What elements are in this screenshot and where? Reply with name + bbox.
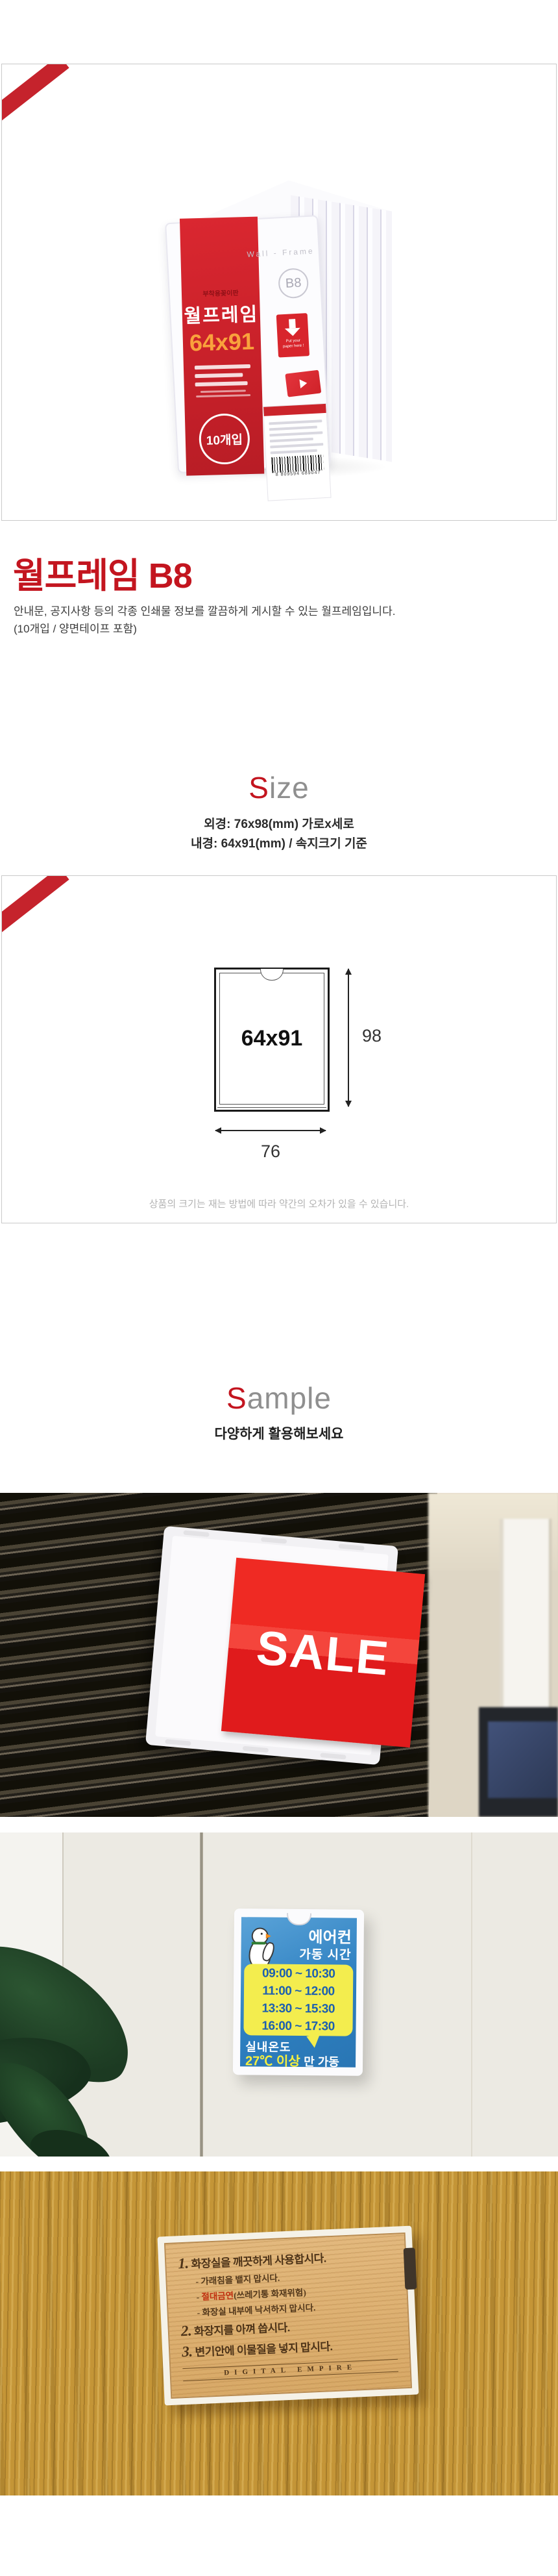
size-disclaimer: 상품의 크기는 재는 방법에 따라 약간의 오차가 있을 수 있습니다.: [0, 1197, 558, 1210]
front-frame: 부착용꽂이판 월프레임 64x91 10개입 Wall - Frame B8: [165, 215, 331, 473]
aircon-subtitle: 가동 시간: [299, 1945, 351, 1963]
package-fine-print-line: [196, 394, 250, 397]
hallway-monitor-screen: [488, 1721, 558, 1798]
height-dimension-arrow: [348, 969, 349, 1107]
time-slot: 09:00 ~ 10:30: [244, 1964, 353, 1982]
aircon-title: 에어컨: [308, 1924, 352, 1947]
sample-subtitle: 다양하게 활용해보세요: [0, 1423, 558, 1443]
package-size: 64x91: [182, 328, 261, 357]
sale-text: SALE: [254, 1619, 392, 1686]
product-photo: 부착용꽂이판 월프레임 64x91 10개입 Wall - Frame B8: [167, 162, 401, 473]
package-name: 월프레임: [182, 299, 260, 329]
time-slot: 11:00 ~ 12:00: [244, 1982, 353, 2000]
frame-slot: [165, 1739, 191, 1745]
aircon-sign-frame: 에어컨 가동 시간 09:00 ~ 10:30 11:00 ~ 12:00 13…: [233, 1908, 364, 2076]
hallway-background: [428, 1493, 558, 1817]
frame-diagram-inner: 64x91: [219, 973, 324, 1105]
sample-photo-sale: SALE: [0, 1493, 558, 1817]
product-photo-panel: 부착용꽂이판 월프레임 64x91 10개입 Wall - Frame B8: [1, 64, 557, 521]
duck-illustration: [246, 1927, 275, 1966]
count-badge: 10개입: [199, 413, 250, 465]
restroom-sign-frame: 1.화장실을 깨끗하게 사용합시다. - 가래침을 뱉지 맙시다. - 절대금연…: [158, 2226, 419, 2406]
time-slot: 16:00 ~ 17:30: [243, 2017, 352, 2035]
speech-bubble-tail: [306, 2033, 323, 2049]
down-arrow-icon: [285, 328, 301, 336]
sign-side-tab: [404, 2247, 417, 2290]
frame-diagram: 64x91: [214, 968, 330, 1112]
outer-size-spec: 외경: 76x98(mm) 가로x세로: [0, 814, 558, 832]
aircon-sign: 에어컨 가동 시간 09:00 ~ 10:30 11:00 ~ 12:00 13…: [240, 1917, 357, 2068]
arrow-note: Put your paper here !: [282, 338, 304, 349]
model-badge: B8: [278, 268, 309, 299]
wall-seam: [200, 1832, 203, 2157]
times-speech-bubble: 09:00 ~ 10:30 11:00 ~ 12:00 13:30 ~ 15:3…: [243, 1964, 353, 2036]
indoor-temp-rule: 27℃ 이상 만 가동: [245, 2050, 339, 2070]
spec-label: 8 809594 689047: [263, 403, 332, 501]
spec-label-rows: [264, 413, 328, 455]
mini-card: [285, 370, 321, 397]
sample-photo-restroom: 1.화장실을 깨끗하게 사용합시다. - 가래침을 뱉지 맙시다. - 절대금연…: [0, 2171, 558, 2495]
corner-ribbon: [1, 64, 69, 129]
insert-arrow-box: Put your paper here !: [276, 313, 309, 357]
frame-slot: [243, 1746, 269, 1753]
product-description: 안내문, 공지사항 등의 각종 인쇄물 정보를 깔끔하게 게시할 수 있는 월프…: [14, 603, 395, 638]
description-line2: (10개입 / 양면테이프 포함): [14, 620, 395, 638]
frame-slot: [183, 1530, 209, 1536]
frame-slot: [320, 1753, 346, 1759]
diagram-baseline: [217, 1107, 326, 1108]
frame-slot: [338, 1544, 364, 1550]
time-slot: 13:30 ~ 15:30: [244, 1999, 353, 2018]
corner-ribbon: [1, 875, 69, 940]
package-bullet-lines: [195, 364, 251, 386]
sale-paper: SALE: [221, 1558, 425, 1747]
frame-slot: [261, 1537, 287, 1544]
size-heading: Size: [0, 770, 558, 805]
sample-heading: Sample: [0, 1381, 558, 1416]
arrow-right-icon: [299, 379, 308, 388]
width-dimension-arrow: [215, 1130, 326, 1131]
restroom-sign: 1.화장실을 깨끗하게 사용합시다. - 가래침을 뱉지 맙시다. - 절대금연…: [164, 2232, 412, 2399]
description-line1: 안내문, 공지사항 등의 각종 인쇄물 정보를 깔끔하게 게시할 수 있는 월프…: [14, 603, 395, 620]
product-detail-page: 부착용꽂이판 월프레임 64x91 10개입 Wall - Frame B8: [0, 0, 558, 2576]
wall-seam: [471, 1832, 472, 2157]
brand-text: DIGITAL EMPIRE: [182, 2359, 398, 2381]
package-fine-print-line: [200, 390, 246, 393]
page-title: 월프레임 B8: [13, 547, 192, 598]
diagram-inner-size: 64x91: [241, 1026, 303, 1051]
down-arrow-icon: [289, 319, 296, 329]
package-small-label: 부착용꽂이판: [182, 287, 260, 299]
width-dimension-label: 76: [215, 1142, 326, 1162]
sample-photo-aircon: 에어컨 가동 시간 09:00 ~ 10:30 11:00 ~ 12:00 13…: [0, 1832, 558, 2157]
inner-size-spec: 내경: 64x91(mm) / 속지크기 기준: [0, 834, 558, 851]
height-dimension-label: 98: [362, 1026, 382, 1046]
